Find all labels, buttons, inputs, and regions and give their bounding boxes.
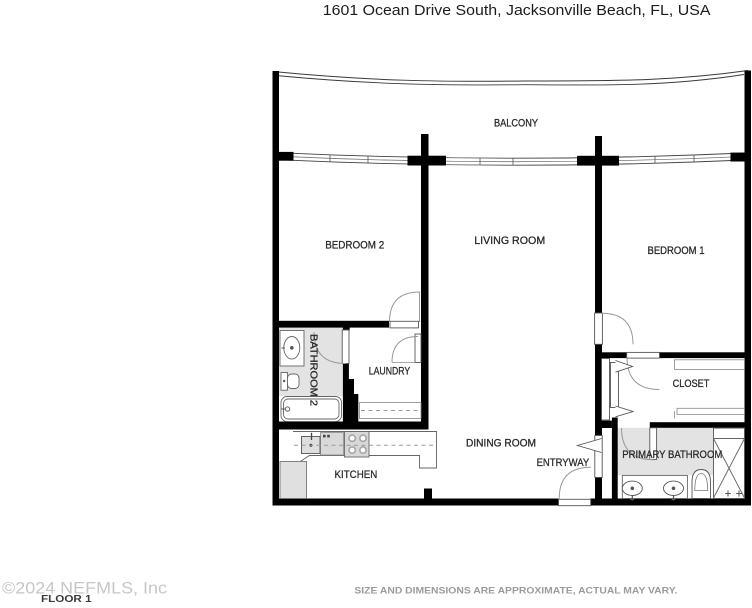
svg-text:FLOOR 1: FLOOR 1 [41, 593, 92, 605]
svg-text:ENTRYWAY: ENTRYWAY [537, 457, 590, 469]
svg-text:BEDROOM 1: BEDROOM 1 [648, 245, 705, 257]
svg-text:CLOSET: CLOSET [673, 378, 710, 390]
svg-text:1601 Ocean Drive South, Jackso: 1601 Ocean Drive South, Jacksonville Bea… [323, 3, 711, 19]
svg-text:BEDROOM 2: BEDROOM 2 [325, 239, 384, 251]
svg-text:PRIMARY BATHROOM: PRIMARY BATHROOM [622, 449, 722, 461]
svg-text:DINING ROOM: DINING ROOM [466, 437, 536, 449]
svg-text:KITCHEN: KITCHEN [335, 469, 378, 481]
svg-text:LIVING ROOM: LIVING ROOM [474, 235, 545, 247]
svg-text:SIZE AND DIMENSIONS ARE APPROX: SIZE AND DIMENSIONS ARE APPROXIMATE, ACT… [354, 585, 677, 595]
svg-text:BATHROOM 2: BATHROOM 2 [308, 334, 319, 406]
svg-text:LAUNDRY: LAUNDRY [369, 366, 411, 378]
svg-text:BALCONY: BALCONY [494, 118, 539, 130]
